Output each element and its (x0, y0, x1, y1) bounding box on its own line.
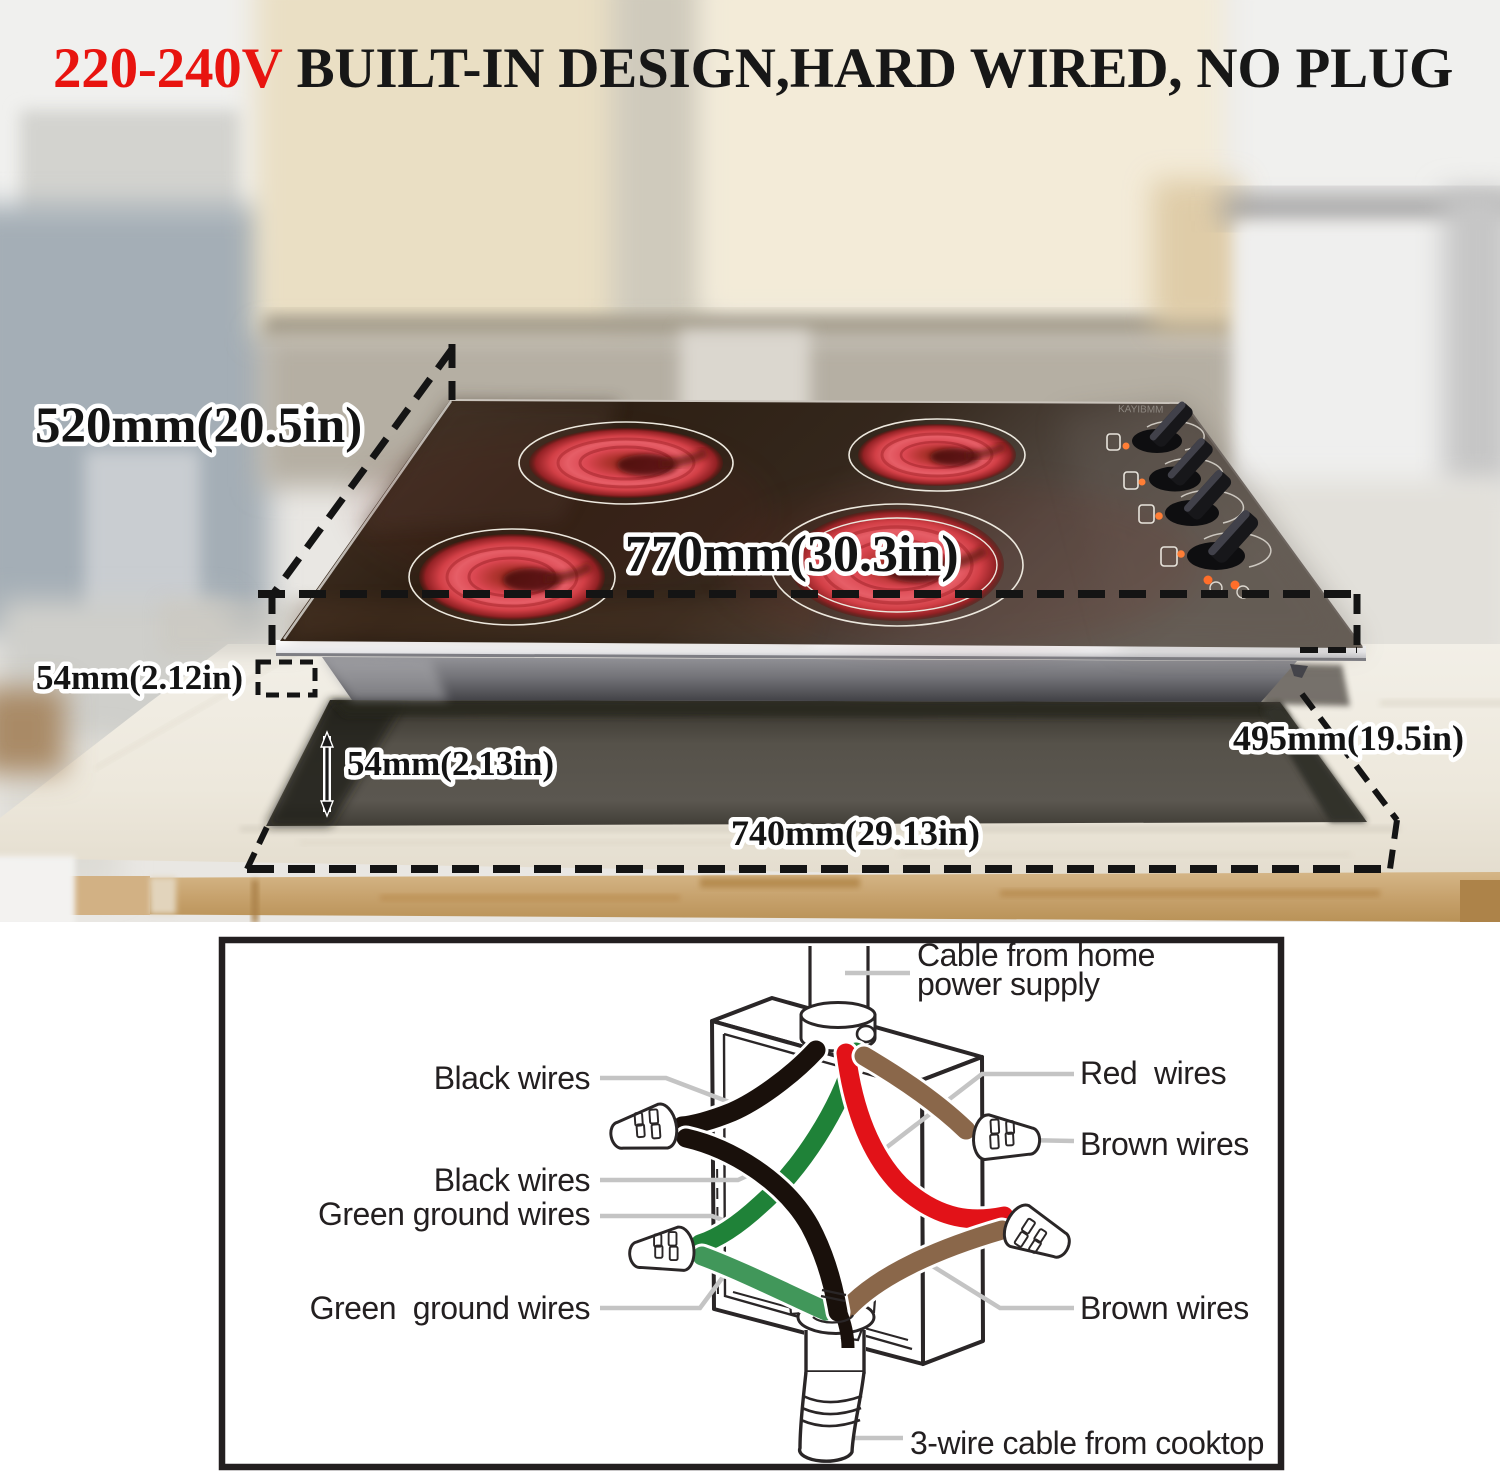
svg-text:220-240V BUILT-IN DESIGN,HARD: 220-240V BUILT-IN DESIGN,HARD WIRED, NO … (53, 37, 1453, 100)
svg-text:54mm(2.12in): 54mm(2.12in) (36, 658, 243, 697)
svg-text:54mm(2.13in): 54mm(2.13in) (347, 744, 554, 783)
svg-text:Red wires: Red wires (1080, 1055, 1226, 1091)
svg-text:495mm(19.5in): 495mm(19.5in) (1233, 718, 1464, 758)
svg-text:Brown wires: Brown wires (1080, 1290, 1249, 1326)
svg-text:KAYIBMM: KAYIBMM (1118, 404, 1164, 416)
svg-text:3-wire cable from cooktop: 3-wire cable from cooktop (910, 1425, 1264, 1461)
svg-text:Green ground wires: Green ground wires (318, 1196, 590, 1232)
svg-text:770mm(30.3in): 770mm(30.3in) (625, 526, 959, 583)
svg-text:Black wires: Black wires (434, 1162, 590, 1198)
svg-text:Black wires: Black wires (434, 1060, 590, 1096)
svg-text:Green ground wires: Green ground wires (310, 1290, 590, 1326)
svg-text:520mm(20.5in): 520mm(20.5in) (35, 398, 362, 454)
svg-text:Brown wires: Brown wires (1080, 1126, 1249, 1162)
svg-text:740mm(29.13in): 740mm(29.13in) (731, 813, 980, 853)
svg-text:power supply: power supply (917, 966, 1100, 1002)
